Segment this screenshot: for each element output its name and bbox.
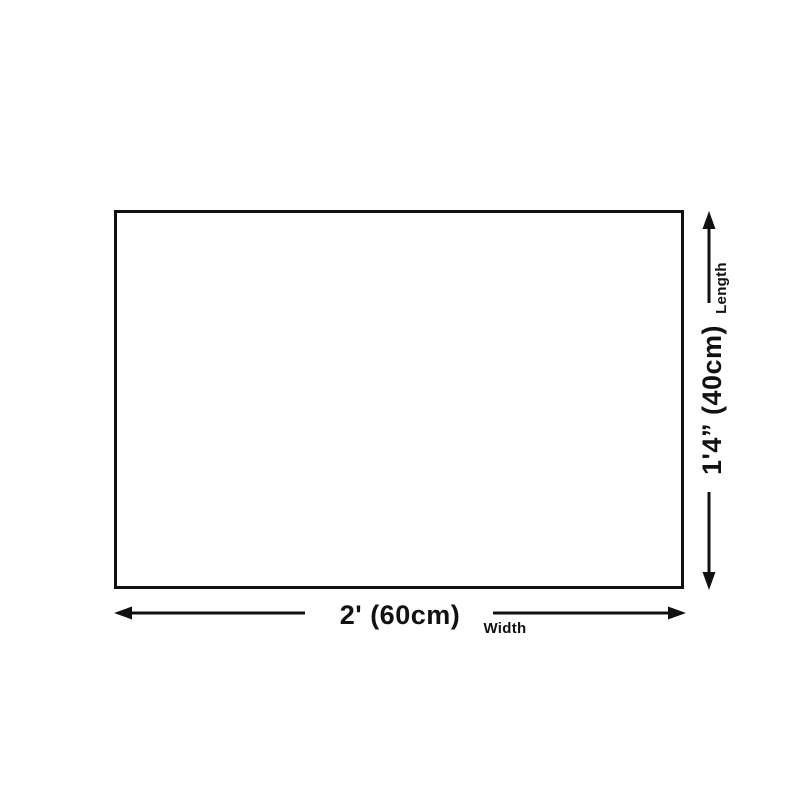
dimension-arrows (0, 0, 800, 800)
arrow-down-icon (703, 492, 716, 590)
arrow-left-icon (114, 607, 305, 620)
length-dimension-value: 1'4” (40cm) (696, 320, 728, 480)
width-dimension-value: 2' (60cm) (300, 600, 500, 630)
arrow-right-icon (493, 607, 686, 620)
width-axis-label: Width (472, 620, 538, 638)
dimension-diagram: Length 1'4” (40cm) 2' (60cm) Width (0, 0, 800, 800)
